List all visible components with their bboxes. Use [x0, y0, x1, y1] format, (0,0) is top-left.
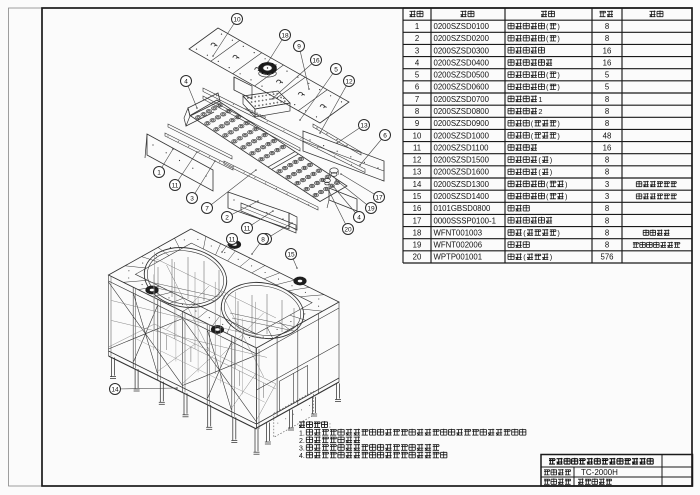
svg-text:TC-2000H: TC-2000H	[581, 468, 618, 477]
svg-text:8: 8	[605, 228, 609, 237]
svg-text:17: 17	[375, 194, 383, 201]
svg-text:9: 9	[415, 119, 419, 128]
svg-text:13: 13	[413, 168, 422, 177]
svg-text:0200SZSD0100: 0200SZSD0100	[434, 22, 490, 31]
svg-text:0200SZSD1300: 0200SZSD1300	[434, 180, 490, 189]
svg-text:0200SZSD0900: 0200SZSD0900	[434, 119, 490, 128]
svg-text:8: 8	[605, 241, 609, 250]
svg-text:3: 3	[605, 192, 609, 201]
svg-text:1: 1	[538, 95, 542, 104]
svg-text:5: 5	[415, 71, 420, 80]
svg-text:8: 8	[605, 156, 609, 165]
svg-text:9: 9	[297, 43, 301, 50]
svg-text:20: 20	[413, 253, 422, 262]
svg-text:1.: 1.	[299, 430, 305, 437]
svg-text:): )	[565, 192, 567, 201]
svg-text:0200SZSD0600: 0200SZSD0600	[434, 83, 490, 92]
svg-text:): )	[557, 83, 559, 92]
svg-text:16: 16	[603, 46, 612, 55]
svg-text:8: 8	[415, 107, 419, 116]
svg-text:19: 19	[413, 241, 422, 250]
svg-text:1: 1	[157, 169, 161, 176]
svg-text:2: 2	[225, 214, 229, 221]
svg-text:2: 2	[538, 107, 542, 116]
svg-text:11: 11	[244, 225, 251, 232]
svg-text:0200SZSD0700: 0200SZSD0700	[434, 95, 490, 104]
svg-text:8: 8	[605, 22, 609, 31]
svg-text:11: 11	[229, 236, 236, 243]
svg-text:8: 8	[605, 119, 609, 128]
svg-text:19: 19	[367, 205, 375, 212]
svg-text:16: 16	[413, 204, 422, 213]
svg-text:): )	[557, 22, 559, 31]
svg-text:12: 12	[413, 156, 422, 165]
svg-text:16: 16	[603, 58, 612, 67]
svg-text:11: 11	[172, 182, 179, 189]
svg-text:8: 8	[605, 168, 609, 177]
svg-text:10: 10	[233, 16, 241, 23]
svg-text:12: 12	[345, 78, 353, 85]
svg-text:14: 14	[111, 386, 119, 393]
svg-text:15: 15	[287, 251, 295, 258]
svg-text:3.: 3.	[299, 446, 305, 453]
svg-text:8: 8	[605, 204, 609, 213]
svg-text:48: 48	[603, 131, 612, 140]
svg-text:11: 11	[413, 143, 421, 152]
svg-text:8: 8	[261, 236, 265, 243]
svg-text:7: 7	[205, 205, 209, 212]
svg-text:): )	[557, 131, 559, 140]
svg-text:18: 18	[413, 228, 422, 237]
svg-text:0200SZSD1100: 0200SZSD1100	[434, 143, 490, 152]
svg-text:5: 5	[334, 66, 338, 73]
svg-text:2.: 2.	[299, 438, 305, 445]
svg-text:0101GBSD0800: 0101GBSD0800	[434, 204, 491, 213]
svg-text:): )	[550, 156, 552, 165]
svg-text:16: 16	[312, 57, 320, 64]
svg-text:3: 3	[190, 195, 194, 202]
svg-text:0200SZSD1600: 0200SZSD1600	[434, 168, 490, 177]
svg-text:0000SSSP0100-1: 0000SSSP0100-1	[434, 216, 496, 225]
svg-text:0200SZSD0300: 0200SZSD0300	[434, 46, 490, 55]
svg-text:13: 13	[360, 122, 368, 129]
svg-text:14: 14	[413, 180, 422, 189]
svg-text:20: 20	[344, 226, 352, 233]
svg-text:WPTP001001: WPTP001001	[434, 253, 483, 262]
svg-text:7: 7	[415, 95, 419, 104]
svg-text:6: 6	[415, 83, 419, 92]
svg-text:3: 3	[605, 180, 609, 189]
svg-text:17: 17	[413, 216, 422, 225]
svg-text:): )	[550, 168, 552, 177]
svg-text::: :	[329, 423, 331, 430]
svg-text:): )	[557, 34, 559, 43]
svg-text:): )	[557, 119, 559, 128]
svg-text:576: 576	[600, 253, 613, 262]
svg-text:WFNT002006: WFNT002006	[434, 241, 483, 250]
svg-text:): )	[565, 180, 567, 189]
svg-text:10: 10	[413, 131, 422, 140]
svg-text:0200SZSD0400: 0200SZSD0400	[434, 58, 490, 67]
svg-text:3: 3	[415, 46, 419, 55]
svg-text:): )	[557, 71, 559, 80]
svg-text:5: 5	[605, 83, 610, 92]
svg-text:4: 4	[184, 78, 188, 85]
svg-text:WFNT001003: WFNT001003	[434, 228, 483, 237]
svg-text:0200SZSD1400: 0200SZSD1400	[434, 192, 490, 201]
svg-text:0200SZSD0800: 0200SZSD0800	[434, 107, 490, 116]
svg-text:8: 8	[605, 216, 609, 225]
svg-text:4.: 4.	[299, 453, 305, 460]
svg-text:5: 5	[605, 71, 610, 80]
svg-text:8: 8	[605, 107, 609, 116]
svg-text:): )	[550, 253, 552, 262]
svg-text:0200SZSD0200: 0200SZSD0200	[434, 34, 490, 43]
svg-text:15: 15	[413, 192, 422, 201]
svg-text:): )	[557, 228, 559, 237]
svg-text:6: 6	[383, 132, 387, 139]
svg-text:0200SZSD1000: 0200SZSD1000	[434, 131, 490, 140]
svg-text:16: 16	[603, 143, 612, 152]
svg-text:8: 8	[605, 95, 609, 104]
svg-text:8: 8	[605, 34, 609, 43]
svg-text:0200SZSD1500: 0200SZSD1500	[434, 156, 490, 165]
svg-text:4: 4	[415, 58, 420, 67]
svg-text:4: 4	[357, 214, 361, 221]
svg-text:2: 2	[415, 34, 419, 43]
svg-text:0200SZSD0500: 0200SZSD0500	[434, 71, 490, 80]
svg-text:1: 1	[415, 22, 419, 31]
svg-text:18: 18	[281, 32, 289, 39]
